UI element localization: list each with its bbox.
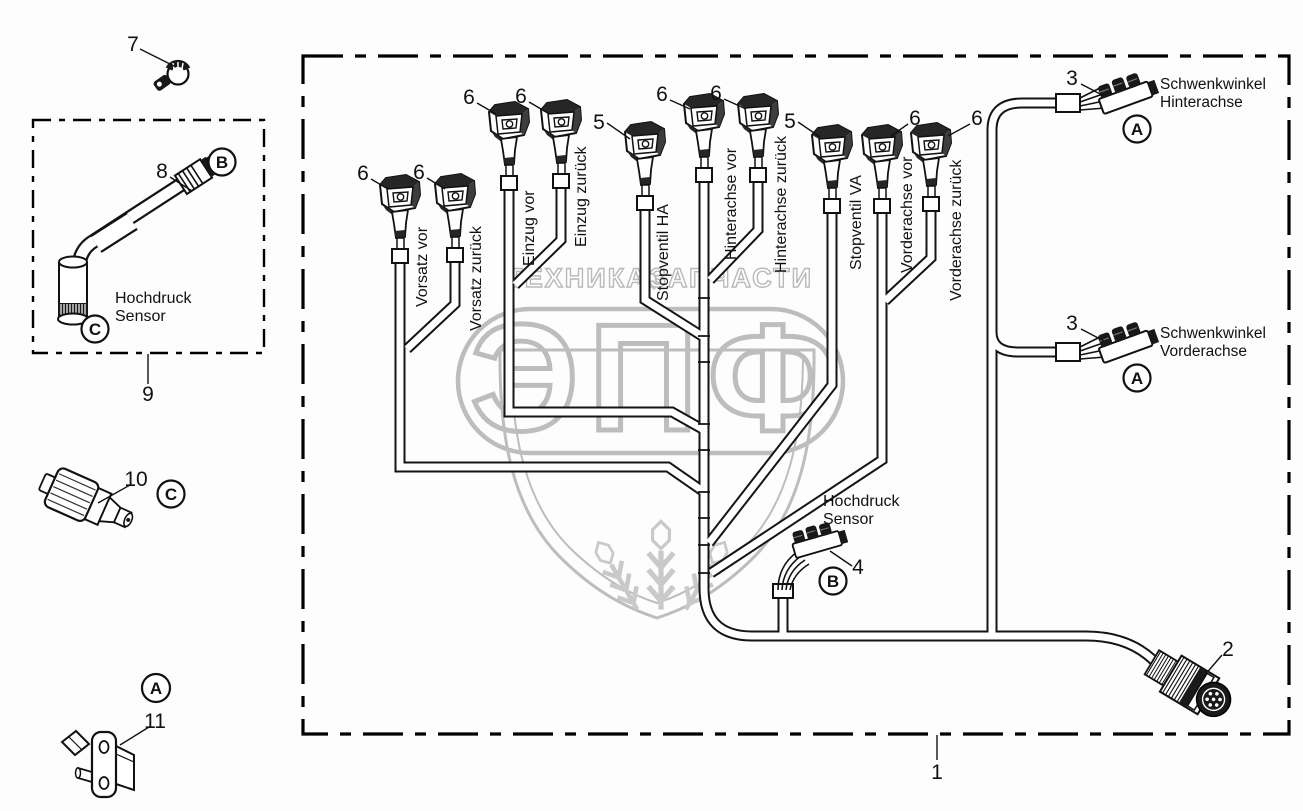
callout-6-vorderachse-zurueck: 6: [971, 107, 983, 130]
harness-parts-diagram: ТЕХНИКА ⚙ ЗАПЧАСТИ ЭПФ: [0, 0, 1303, 811]
badge-b-sensor-kit: B: [209, 149, 236, 176]
callout-6-einzug-zurueck: 6: [515, 85, 527, 108]
svg-text:A: A: [1131, 120, 1143, 139]
label-hochdruck-main-line2: Sensor: [823, 511, 874, 528]
svg-text:A: A: [1131, 369, 1143, 388]
badge-a-mount-bracket: A: [142, 674, 170, 702]
callout-6-hinterachse-zurueck: 6: [710, 82, 722, 105]
svg-text:B: B: [827, 572, 839, 591]
branch-label-hinterachse-vor: Hinterachse vor: [723, 147, 740, 260]
badge-b-hochdruck-main: B: [820, 568, 847, 595]
badge-c-sensor-kit: C: [82, 316, 109, 343]
branch-label-stopventil-va: Stopventil VA: [848, 175, 865, 270]
callout-5-ha: 5: [593, 111, 605, 134]
branch-label-vorsatz-vor: Vorsatz vor: [414, 226, 431, 307]
callout-3-upper: 3: [1066, 67, 1078, 90]
callout-7: 7: [127, 33, 139, 56]
label-hochdruck-box-line2: Sensor: [115, 308, 166, 325]
mount-bracket-part: [62, 731, 134, 797]
label-schwenkwinkel-vorderachse-line1: Schwenkwinkel: [1160, 325, 1266, 342]
callout-2: 2: [1222, 638, 1234, 661]
label-hochdruck-main-line1: Hochdruck: [823, 493, 900, 510]
callout-6-einzug-vor: 6: [463, 86, 475, 109]
branch-label-vorderachse-zurueck: Vorderachse zurück: [948, 159, 965, 301]
svg-text:B: B: [216, 153, 228, 172]
wiring-harness-diagram-page: ТЕХНИКА ⚙ ЗАПЧАСТИ ЭПФ: [0, 0, 1303, 811]
callout-9: 9: [142, 383, 154, 406]
branch-label-einzug-vor: Einzug vor: [521, 190, 538, 266]
branch-label-vorderachse-vor: Vorderachse vor: [899, 156, 916, 273]
sensor-kit-sensor-head: [58, 257, 88, 325]
callout-6-vorderachse-vor: 6: [909, 107, 921, 130]
plug-einzug-vor: [489, 102, 529, 190]
plug-hinterachse-zurueck: [738, 94, 778, 182]
plug-vorderachse-zurueck: [911, 123, 951, 211]
callout-1: 1: [931, 761, 943, 784]
callout-8: 8: [156, 160, 168, 183]
plug-hinterachse-vor: [684, 94, 724, 182]
callout-11: 11: [144, 710, 166, 733]
callout-3-lower: 3: [1066, 312, 1078, 335]
clamp-part: [152, 62, 188, 92]
svg-text:A: A: [150, 679, 162, 698]
callout-6-hinterachse-vor: 6: [656, 83, 668, 106]
plug-stopventil-ha: [625, 122, 665, 210]
callout-4: 4: [852, 556, 864, 579]
svg-text:C: C: [165, 485, 177, 504]
svg-text:C: C: [89, 320, 101, 339]
plug-stopventil-va: [812, 125, 852, 213]
plug-vorderachse-vor: [862, 125, 902, 213]
branch-label-stopventil-ha: Stopventil HA: [655, 204, 672, 301]
callout-10: 10: [124, 468, 147, 491]
callout-6-vorsatz-zurueck: 6: [413, 161, 425, 184]
badge-c-pressure-valve: C: [158, 481, 185, 508]
branch-label-hinterachse-zurueck: Hinterachse zurück: [773, 135, 790, 273]
label-schwenkwinkel-hinterachse-line2: Hinterachse: [1160, 94, 1243, 111]
callout-5-va: 5: [784, 110, 796, 133]
branch-label-vorsatz-zurueck: Vorsatz zurück: [468, 225, 485, 331]
label-schwenkwinkel-vorderachse-line2: Vorderachse: [1160, 343, 1247, 360]
label-schwenkwinkel-hinterachse-line1: Schwenkwinkel: [1160, 76, 1266, 93]
callout-6-vorsatz-vor: 6: [357, 162, 369, 185]
label-hochdruck-box-line1: Hochdruck: [115, 290, 192, 307]
badge-a-schwenkwinkel-vorderachse: A: [1124, 365, 1151, 392]
branch-label-einzug-zurueck: Einzug zurück: [573, 146, 590, 247]
badge-a-schwenkwinkel-hinterachse: A: [1124, 116, 1151, 143]
